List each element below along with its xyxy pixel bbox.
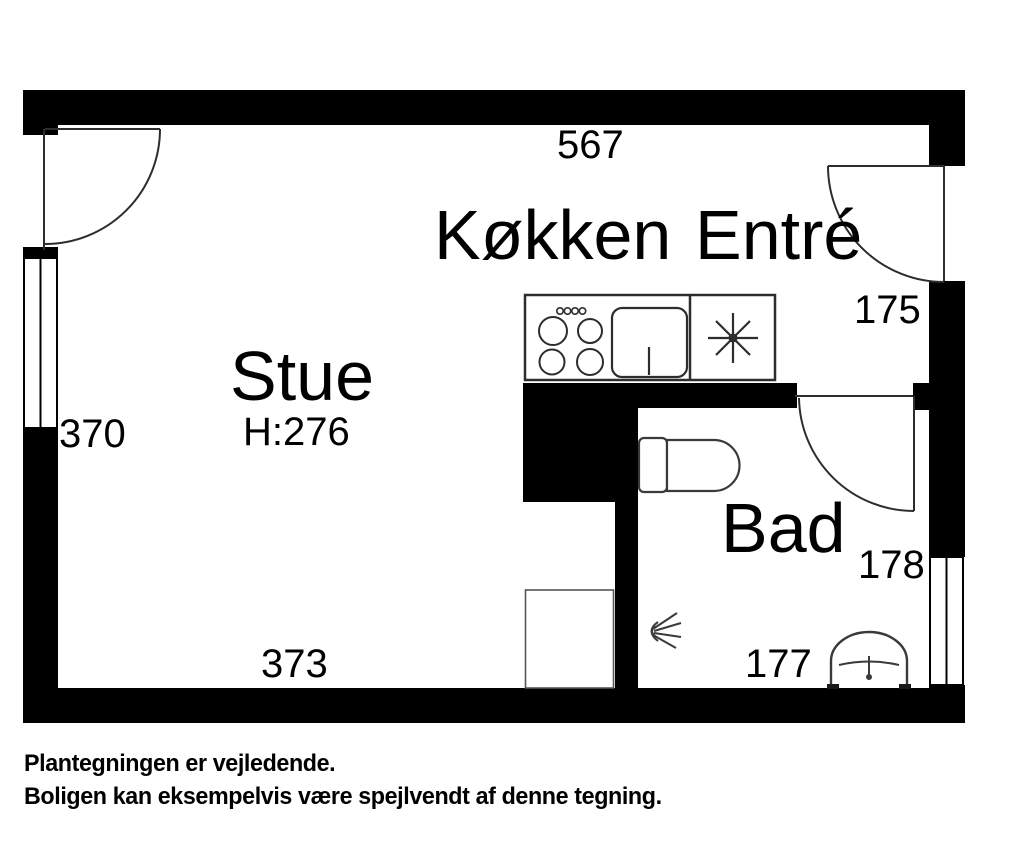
right-wall-top — [929, 90, 965, 166]
ceiling-height-label: H:276 — [243, 412, 350, 452]
room-label-entre: Entré — [695, 200, 862, 270]
bath-door-pier — [913, 383, 929, 410]
shower-head-symbol — [652, 613, 682, 648]
dimension-bottom-width: 373 — [261, 644, 328, 684]
kitchen-bath-wall-block — [523, 383, 638, 502]
dimension-entre-width: 175 — [854, 290, 921, 330]
dimension-bad-height: 178 — [858, 545, 925, 585]
room-label-kokken: Køkken — [434, 200, 671, 270]
right-wall-mid — [929, 281, 965, 557]
right-wall-bottom — [929, 685, 965, 723]
toilet-symbol — [639, 438, 740, 492]
floorplan-drawing — [0, 0, 1011, 848]
bath-left-wall — [615, 500, 638, 690]
top-wall — [23, 90, 965, 125]
washbasin-symbol — [827, 632, 911, 689]
disclaimer-line-2: Boligen kan eksempelvis være spejlvendt … — [24, 785, 662, 809]
room-label-bad: Bad — [721, 493, 846, 563]
bath-top-wall — [638, 383, 797, 408]
bottom-wall — [23, 688, 964, 723]
windows — [24, 258, 963, 685]
dimension-left-height: 370 — [59, 414, 126, 454]
stue-door-swing-symbol — [44, 129, 160, 250]
disclaimer-line-1: Plantegningen er vejledende. — [24, 752, 335, 776]
walls — [23, 90, 965, 723]
doors — [44, 129, 944, 511]
dimension-bad-width: 177 — [745, 644, 812, 684]
room-label-stue: Stue — [230, 341, 374, 411]
left-window-symbol — [24, 258, 57, 428]
dimension-top-width: 567 — [557, 125, 624, 165]
kitchen-cabinet — [526, 590, 614, 688]
floorplan-canvas: Stue H:276 Køkken Entré Bad 567 370 373 … — [0, 0, 1011, 848]
left-wall-lower — [23, 428, 58, 723]
right-window-symbol — [930, 557, 963, 685]
